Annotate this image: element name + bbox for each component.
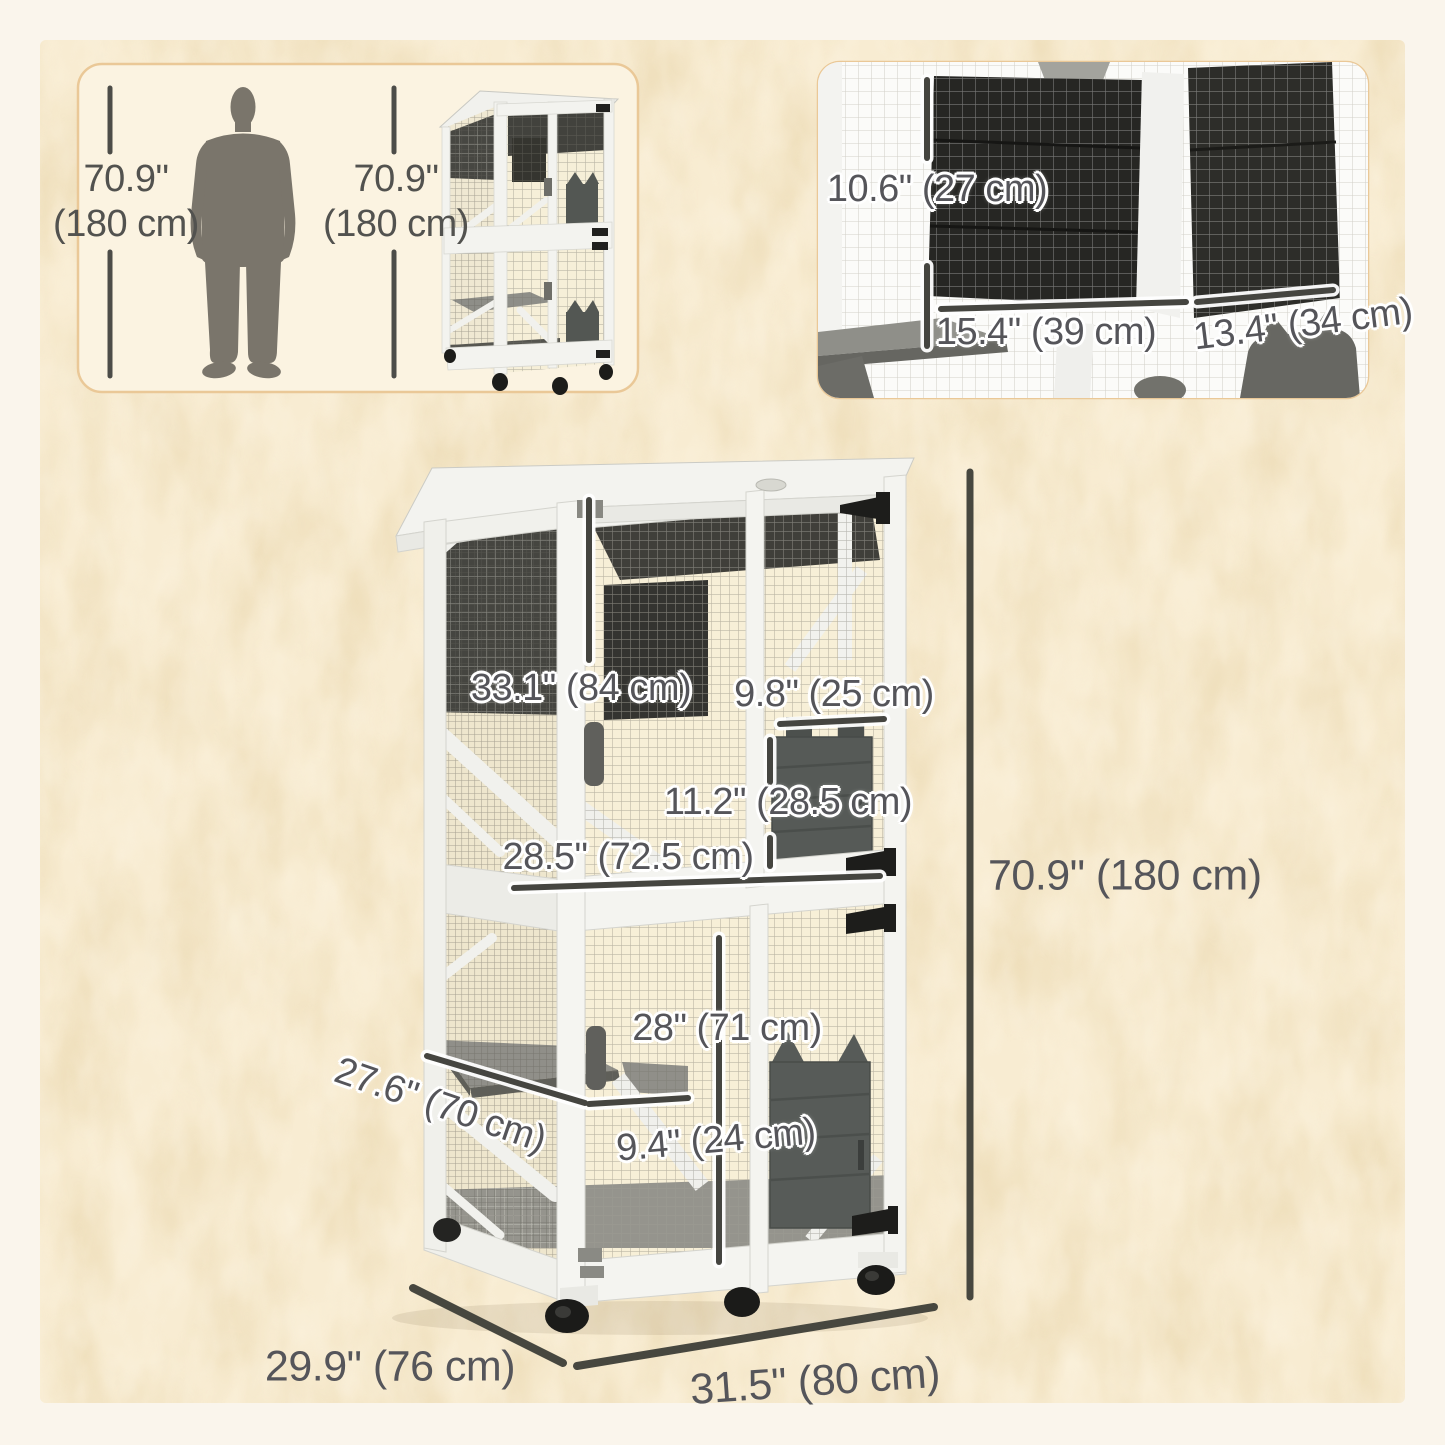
catio-dimension-infographic: 70.9" (180 cm) 70.9" (180 cm) 10.6" (27 … [0, 0, 1445, 1445]
upper-cat-flap [772, 717, 872, 867]
closeup-panel [818, 62, 1368, 404]
mini-catio [440, 91, 618, 395]
closeup-photo [818, 62, 1368, 404]
brand-plaque [756, 479, 786, 491]
illustration-layer [0, 0, 1445, 1445]
catio-illustration [392, 458, 928, 1335]
lower-door-handle [586, 1026, 606, 1090]
scale-panel [78, 64, 638, 395]
lower-cat-flap [770, 1032, 870, 1228]
upper-door-handle [584, 722, 604, 786]
